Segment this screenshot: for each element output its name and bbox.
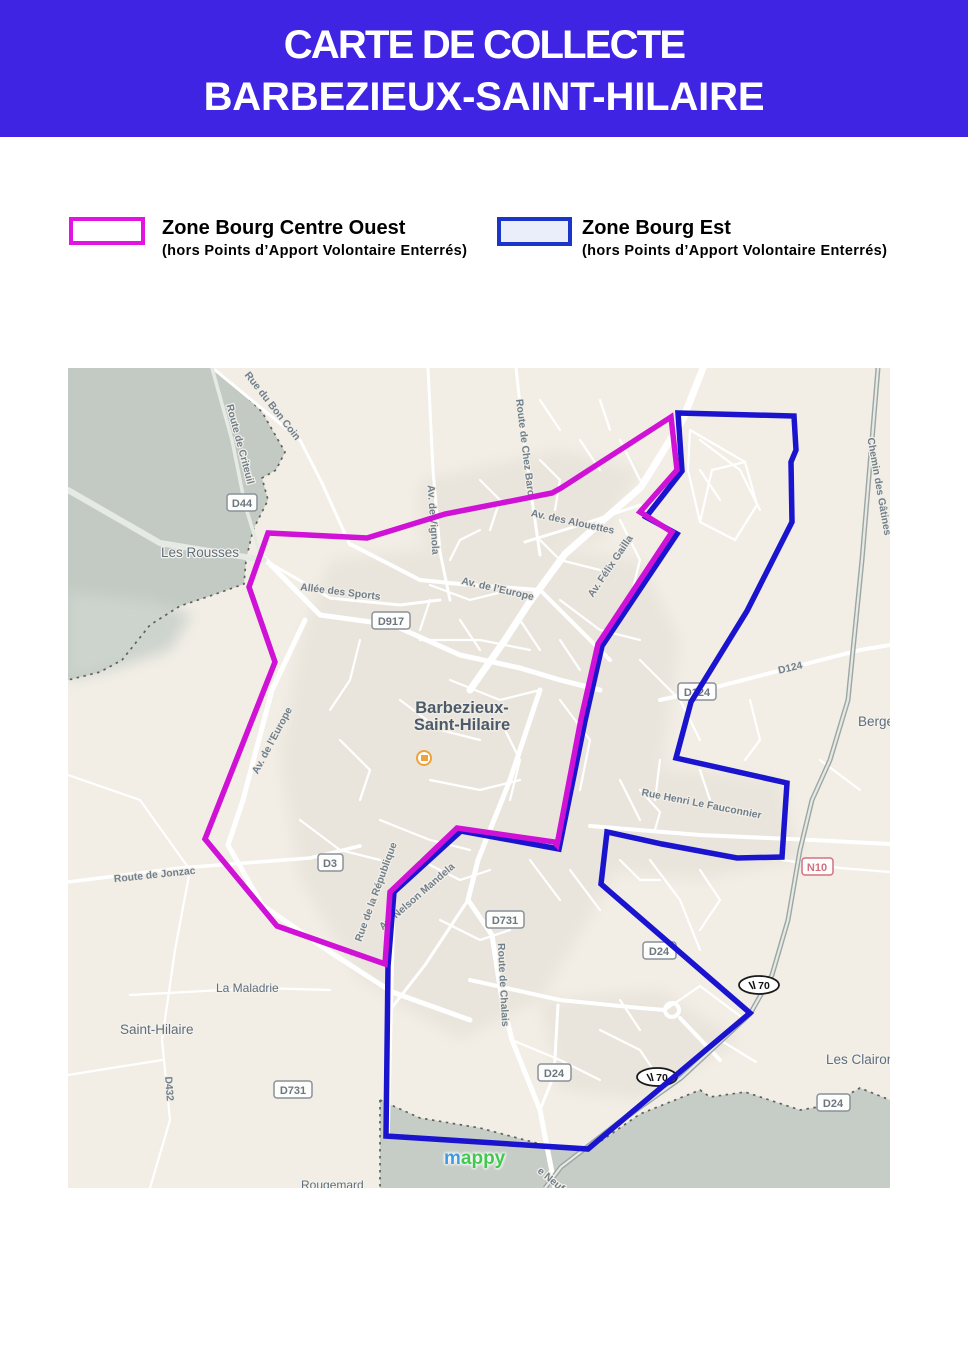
svg-text:Les Clairons: Les Clairons (826, 1052, 890, 1067)
svg-text:Les Rousses: Les Rousses (161, 545, 239, 560)
svg-text:D731: D731 (492, 915, 518, 927)
svg-text:70: 70 (758, 980, 770, 992)
svg-text:D24: D24 (649, 946, 670, 958)
svg-text:D24: D24 (823, 1098, 844, 1110)
svg-text:D731: D731 (280, 1085, 306, 1097)
svg-text:D432: D432 (162, 1076, 175, 1102)
svg-text:D917: D917 (378, 616, 404, 628)
svg-text:La Maladrie: La Maladrie (216, 981, 279, 995)
svg-text:Bergeri: Bergeri (858, 714, 890, 729)
svg-text:N10: N10 (807, 862, 827, 874)
svg-text:Saint-Hilaire: Saint-Hilaire (120, 1022, 194, 1037)
svg-text:Barbezieux-: Barbezieux- (415, 699, 509, 717)
svg-text:Rougemard: Rougemard (301, 1178, 364, 1188)
svg-text:D3: D3 (323, 858, 337, 870)
svg-text:D24: D24 (544, 1068, 565, 1080)
svg-text:D44: D44 (232, 498, 253, 510)
svg-text:Saint-Hilaire: Saint-Hilaire (414, 716, 510, 734)
